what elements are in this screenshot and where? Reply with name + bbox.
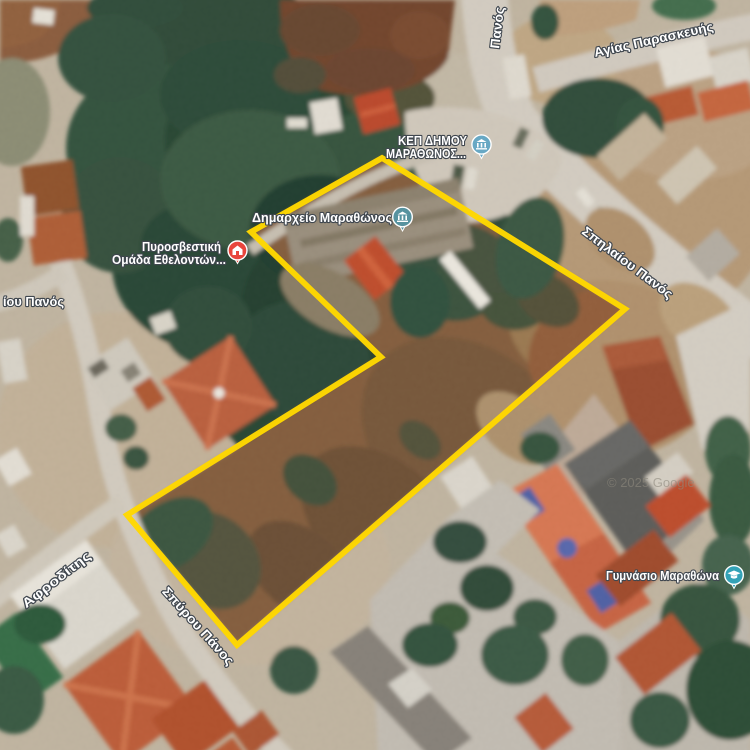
svg-text:Γυμνάσιο Μαραθώνα: Γυμνάσιο Μαραθώνα xyxy=(606,568,719,583)
svg-text:© 2025 Google: © 2025 Google xyxy=(607,475,695,490)
svg-text:Πυροσβεστική: Πυροσβεστική xyxy=(142,240,221,254)
svg-text:Δημαρχείο Μαραθώνος: Δημαρχείο Μαραθώνος xyxy=(252,210,392,225)
svg-text:Ομάδα Εθελοντών...: Ομάδα Εθελοντών... xyxy=(112,253,226,267)
svg-text:ΚΕΠ ΔΗΜΟΥ: ΚΕΠ ΔΗΜΟΥ xyxy=(398,134,468,148)
svg-text:ΜΑΡΑΘΩΝΟΣ...: ΜΑΡΑΘΩΝΟΣ... xyxy=(386,147,466,161)
svg-text:ίου Πανός: ίου Πανός xyxy=(3,294,64,309)
